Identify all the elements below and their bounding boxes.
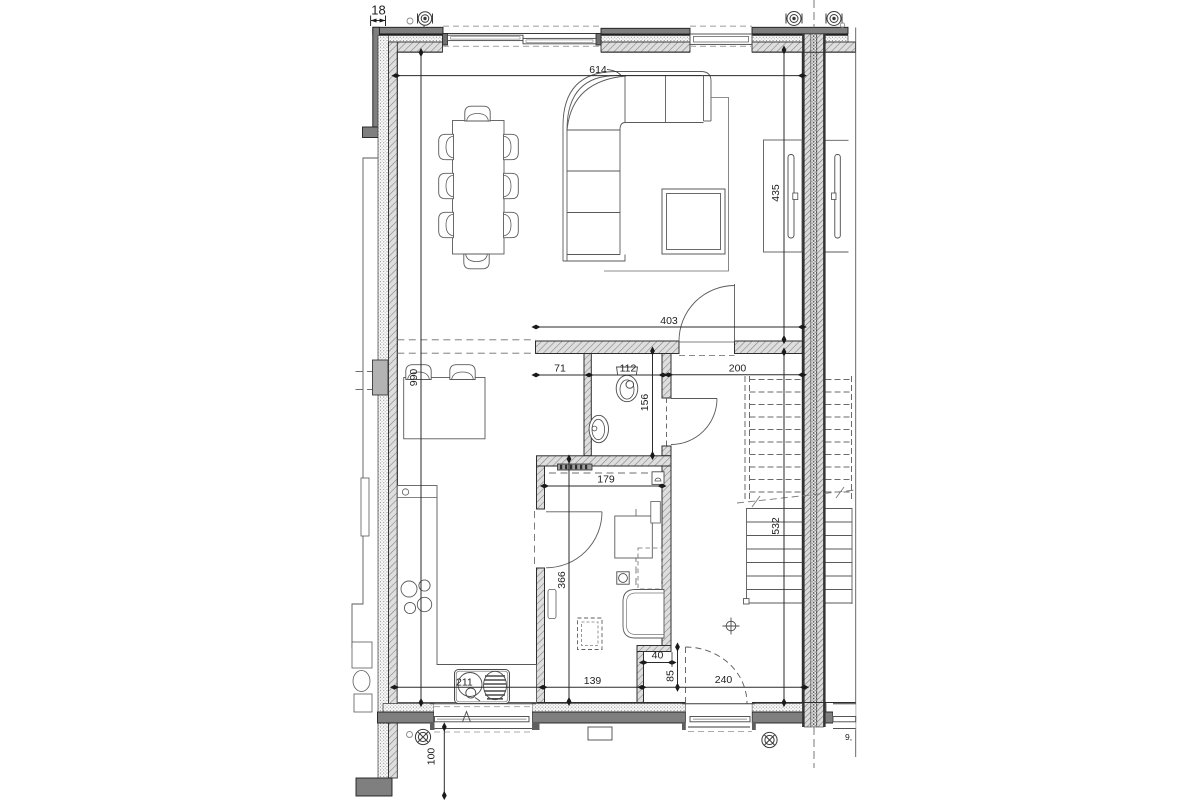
svg-text:211: 211 bbox=[456, 677, 473, 689]
svg-text:156: 156 bbox=[639, 394, 651, 412]
svg-text:366: 366 bbox=[556, 571, 568, 589]
svg-text:112: 112 bbox=[620, 363, 637, 375]
svg-text:139: 139 bbox=[584, 675, 602, 687]
svg-text:990: 990 bbox=[408, 369, 420, 387]
svg-text:435: 435 bbox=[770, 184, 782, 202]
svg-text:18: 18 bbox=[371, 3, 385, 18]
svg-text:614: 614 bbox=[589, 64, 607, 76]
svg-text:100: 100 bbox=[426, 748, 438, 766]
svg-text:85: 85 bbox=[665, 670, 677, 682]
svg-text:40: 40 bbox=[652, 650, 664, 662]
svg-text:9,: 9, bbox=[845, 732, 852, 742]
svg-text:200: 200 bbox=[729, 363, 747, 375]
svg-text:240: 240 bbox=[715, 674, 733, 686]
svg-text:532: 532 bbox=[770, 517, 782, 535]
svg-text:403: 403 bbox=[660, 315, 678, 327]
svg-text:179: 179 bbox=[597, 474, 615, 486]
svg-text:71: 71 bbox=[554, 363, 566, 375]
